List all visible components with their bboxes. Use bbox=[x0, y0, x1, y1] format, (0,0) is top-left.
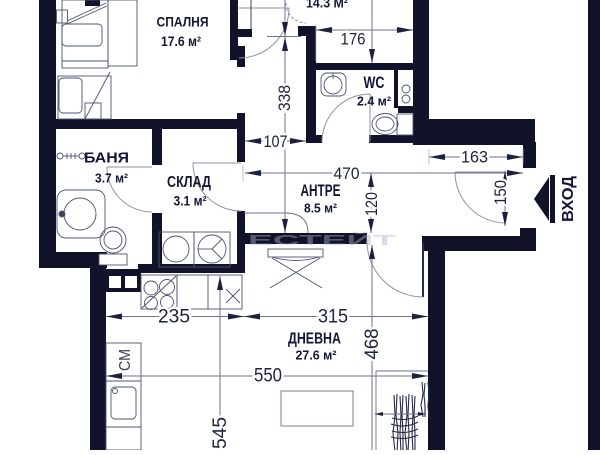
svg-text:163: 163 bbox=[461, 149, 488, 167]
svg-text:ВХОД: ВХОД bbox=[560, 175, 577, 222]
svg-text:14.3 М²: 14.3 М² bbox=[306, 0, 348, 11]
svg-text:338: 338 bbox=[276, 85, 294, 111]
svg-text:550: 550 bbox=[254, 366, 282, 387]
svg-text:3.1 м²: 3.1 м² bbox=[174, 194, 207, 209]
svg-text:СМ: СМ bbox=[117, 349, 134, 371]
svg-text:ЕСТЕЙТ: ЕСТЕЙТ bbox=[248, 231, 396, 249]
svg-text:СКЛАД: СКЛАД bbox=[167, 174, 211, 191]
svg-text:120: 120 bbox=[363, 192, 381, 216]
svg-text:8.5 м²: 8.5 м² bbox=[304, 201, 338, 216]
svg-text:235: 235 bbox=[158, 307, 190, 328]
svg-text:2.4 м²: 2.4 м² bbox=[357, 94, 392, 109]
svg-text:СПАЛНЯ: СПАЛНЯ bbox=[157, 14, 209, 30]
svg-text:176: 176 bbox=[341, 31, 366, 49]
svg-text:470: 470 bbox=[334, 165, 360, 183]
svg-text:БАНЯ: БАНЯ bbox=[84, 151, 129, 167]
svg-text:107: 107 bbox=[264, 133, 288, 151]
svg-text:3.7 м²: 3.7 м² bbox=[95, 171, 129, 186]
svg-text:545: 545 bbox=[210, 417, 231, 449]
svg-text:27.6 м²: 27.6 м² bbox=[296, 348, 338, 363]
svg-text:АНТРЕ: АНТРЕ bbox=[301, 182, 341, 200]
svg-text:WC: WC bbox=[364, 74, 385, 92]
svg-text:315: 315 bbox=[318, 307, 348, 328]
svg-text:ДНЕВНА: ДНЕВНА bbox=[288, 331, 341, 348]
svg-text:468: 468 bbox=[362, 329, 383, 360]
svg-text:17.6 м²: 17.6 м² bbox=[161, 34, 201, 49]
svg-text:150: 150 bbox=[492, 180, 510, 205]
